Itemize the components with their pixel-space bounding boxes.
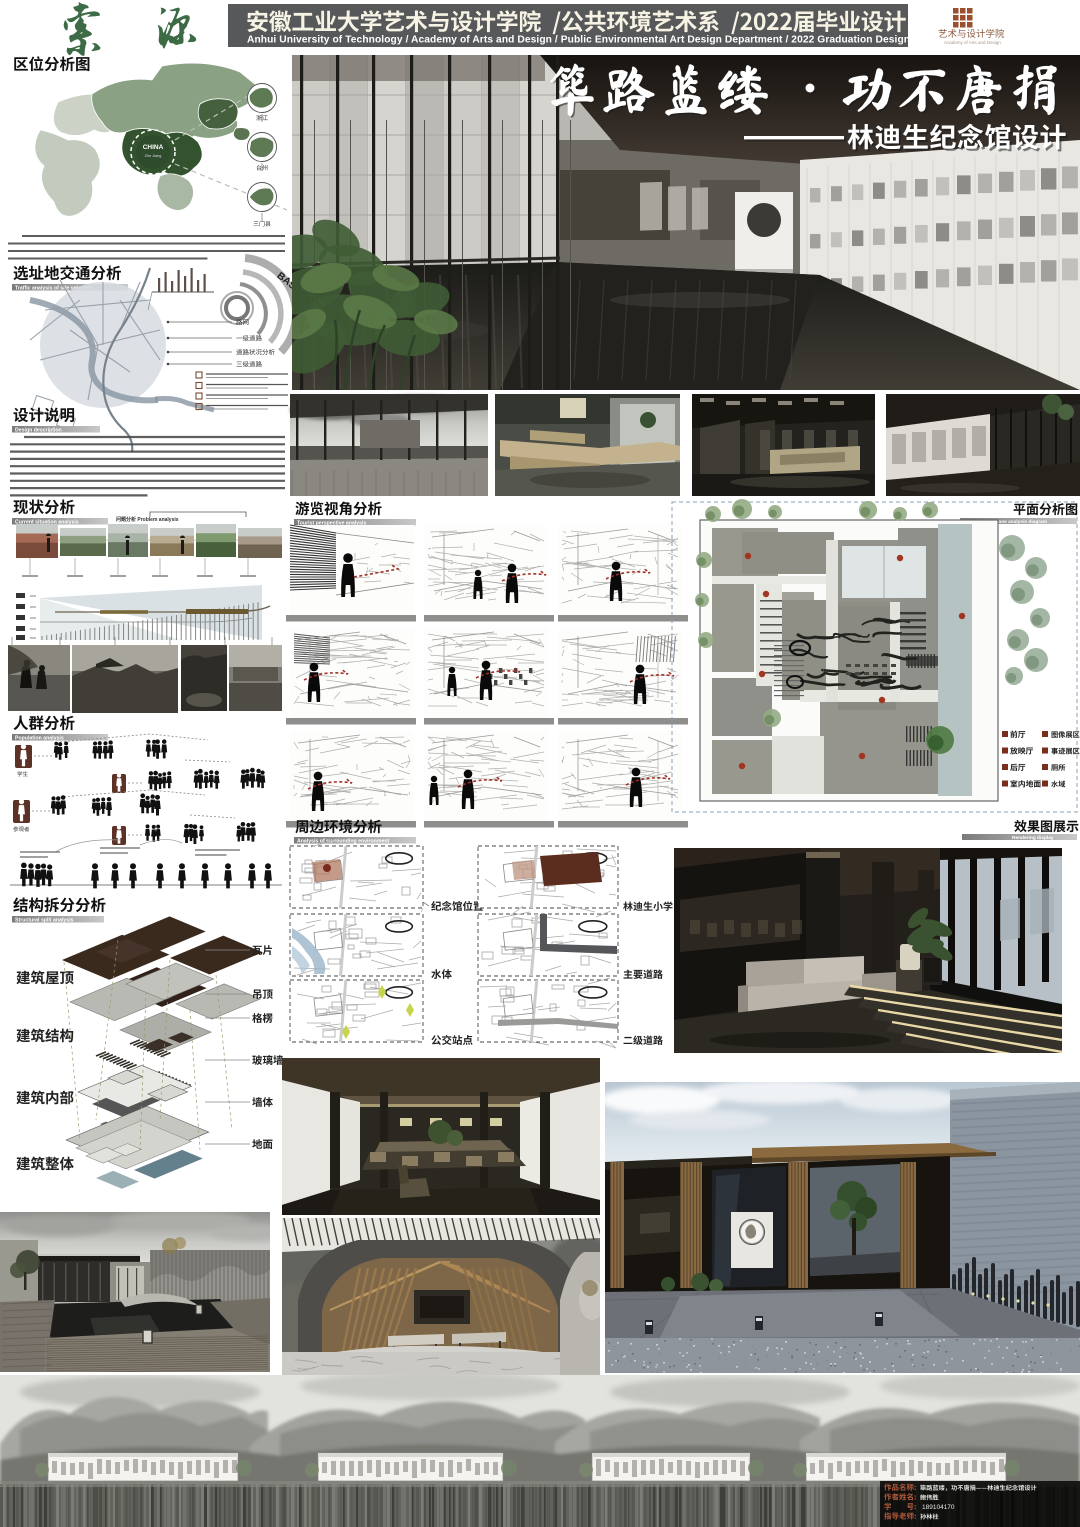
svg-text:Plane analysis diagram: Plane analysis diagram xyxy=(994,519,1047,525)
svg-text:Rendering display: Rendering display xyxy=(1012,835,1054,841)
svg-text:Analysis of surrounding enviro: Analysis of surrounding environment xyxy=(297,838,390,844)
svg-text:189104170: 189104170 xyxy=(922,1504,955,1511)
svg-text:Academy of Arts and Design: Academy of Arts and Design xyxy=(944,40,1001,45)
svg-text:Anhui University of Technology: Anhui University of Technology / Academy… xyxy=(247,35,910,46)
svg-text:Zhe Jiang: Zhe Jiang xyxy=(145,154,162,158)
svg-text:Population analysis: Population analysis xyxy=(15,735,64,741)
svg-text:问题分析 Problem analysis: 问题分析 Problem analysis xyxy=(116,516,179,523)
svg-text:Structural split analysis: Structural split analysis xyxy=(15,917,74,923)
svg-text:CHINA: CHINA xyxy=(143,144,164,151)
svg-text:Design description: Design description xyxy=(15,427,62,433)
